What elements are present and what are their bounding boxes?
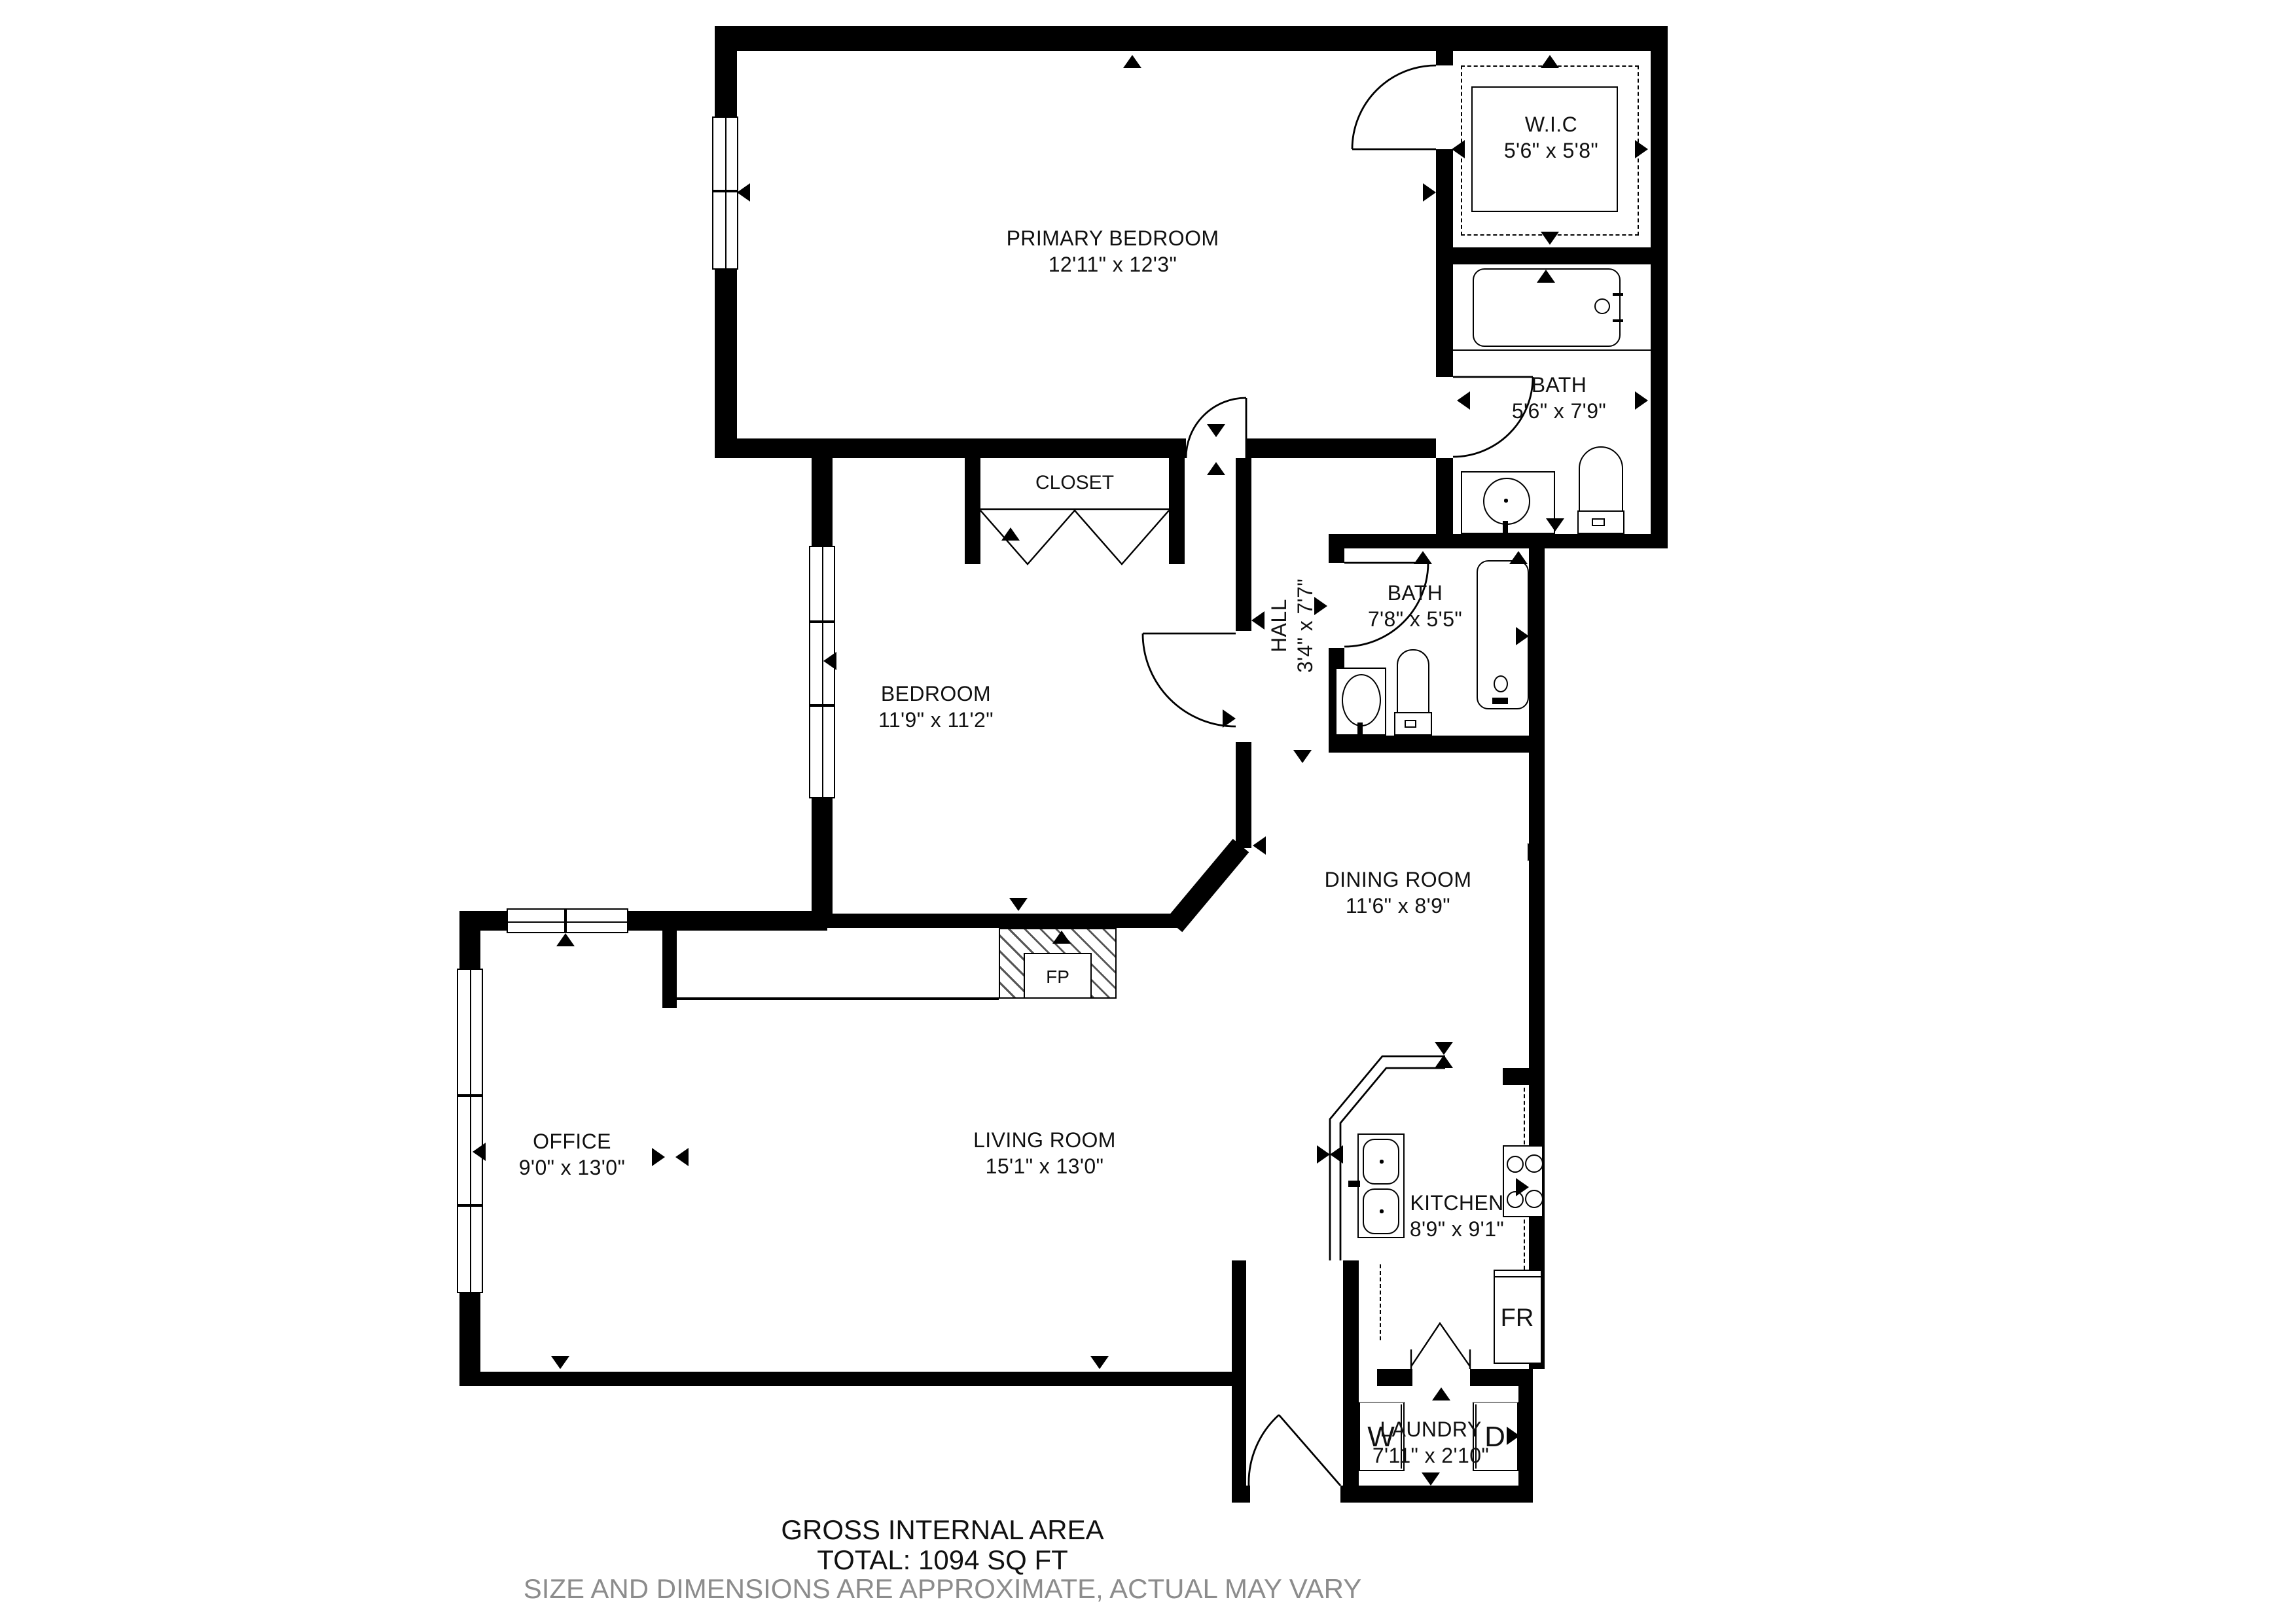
dimension-marker — [1635, 391, 1648, 410]
dimension-marker — [1090, 1356, 1109, 1369]
dimension-marker — [1516, 627, 1529, 645]
sink-faucet — [1357, 722, 1363, 734]
dimension-marker — [1423, 183, 1436, 202]
sink-faucet — [1348, 1181, 1360, 1187]
dimension-marker — [1435, 1042, 1453, 1055]
dimension-marker — [556, 933, 575, 946]
dimension-marker — [1541, 55, 1559, 68]
dimension-marker — [1317, 1145, 1330, 1164]
wall — [1529, 534, 1545, 1369]
toilet-flush — [1405, 720, 1416, 728]
dimension-marker — [1509, 551, 1528, 564]
label-fridge: FR — [1501, 1305, 1534, 1334]
wall — [626, 911, 827, 931]
wall — [1436, 458, 1453, 548]
wall — [459, 1372, 1232, 1386]
dimension-marker — [1528, 843, 1541, 861]
tub-tap — [1492, 698, 1508, 704]
dimension-marker — [1293, 750, 1312, 763]
dimension-marker — [473, 1143, 486, 1161]
wall — [662, 914, 677, 1008]
sink-drain — [1504, 499, 1507, 502]
dimension-marker — [1435, 1055, 1453, 1068]
sink-basin-icon — [1342, 674, 1381, 726]
dimension-marker — [1009, 898, 1028, 911]
floor-plan: PRIMARY BEDROOM12'11" x 12'3"W.I.C5'6" x… — [0, 0, 2296, 1623]
room-label-dining-room: DINING ROOM11'6" x 8'9" — [1325, 868, 1472, 919]
wall — [1232, 1260, 1246, 1503]
tub-tap — [1613, 319, 1623, 322]
label-closet: CLOSET — [1035, 472, 1114, 494]
dimension-marker — [1207, 462, 1225, 475]
dimension-marker — [1422, 1472, 1440, 1486]
dimension-marker — [1207, 424, 1225, 437]
wall — [1436, 247, 1668, 264]
counter-dashed-line — [1380, 1264, 1381, 1340]
wall — [715, 26, 1668, 51]
label-fireplace: FP — [1046, 966, 1069, 987]
wall — [1340, 1486, 1533, 1503]
dimension-marker — [1223, 709, 1236, 728]
wall — [1236, 458, 1251, 631]
dimension-marker — [1347, 1427, 1360, 1445]
wall — [1436, 149, 1453, 377]
wall — [1169, 438, 1185, 564]
sink-drain — [1380, 1209, 1383, 1213]
dimension-marker — [1541, 232, 1559, 245]
wall — [1343, 1260, 1359, 1486]
toilet-icon — [1579, 446, 1623, 512]
dimension-marker — [1635, 140, 1648, 158]
window — [507, 908, 628, 933]
room-label-kitchen: KITCHEN8'9" x 9'1" — [1410, 1192, 1504, 1243]
toilet-flush — [1592, 518, 1605, 526]
bath1-tub-line — [1453, 349, 1651, 351]
dimension-marker — [1537, 270, 1555, 283]
sink-drain — [1380, 1160, 1383, 1163]
dimension-marker — [1123, 55, 1141, 68]
label-washer: W — [1367, 1420, 1395, 1454]
wall — [1236, 742, 1251, 848]
dimension-marker — [1253, 836, 1266, 855]
room-label-living-room: LIVING ROOM15'1" x 13'0" — [973, 1129, 1116, 1180]
burner — [1507, 1156, 1524, 1173]
tub-tap — [1613, 293, 1623, 296]
dimension-marker — [823, 652, 836, 670]
wall — [1651, 26, 1668, 548]
dimension-marker — [1507, 1427, 1520, 1445]
toilet-icon — [1397, 649, 1429, 715]
wall — [1518, 1369, 1533, 1503]
dimension-marker — [675, 1148, 689, 1166]
dimension-marker — [1001, 527, 1020, 541]
dimension-marker — [1452, 140, 1465, 158]
dimension-marker — [1314, 597, 1327, 615]
wall — [1329, 534, 1668, 548]
wall — [965, 438, 980, 564]
tub-faucet-icon — [1594, 298, 1610, 314]
room-label-wic: W.I.C5'6" x 5'8" — [1504, 113, 1598, 164]
wall — [1329, 736, 1545, 753]
tub-faucet-icon — [1494, 675, 1508, 692]
dimension-marker — [1330, 1145, 1343, 1164]
wall — [1246, 438, 1436, 458]
room-label-hall: HALL3'4" x 7'7" — [1268, 579, 1319, 673]
dimension-marker — [1546, 518, 1564, 531]
window — [712, 116, 738, 270]
living-room-edge-line — [677, 997, 999, 999]
sink-faucet — [1503, 521, 1508, 533]
room-label-bedroom: BEDROOM11'9" x 11'2" — [878, 683, 994, 734]
gross-area-total: TOTAL: 1094 SQ FT — [817, 1546, 1068, 1577]
room-label-bath-2: BATH7'8" x 5'5" — [1368, 582, 1462, 633]
dimension-marker — [1457, 391, 1470, 410]
fridge-line — [1495, 1276, 1541, 1277]
label-dryer: D — [1484, 1420, 1505, 1454]
dimension-marker — [652, 1148, 665, 1166]
gross-area-title: GROSS INTERNAL AREA — [781, 1516, 1103, 1547]
room-label-office: OFFICE9'0" x 13'0" — [519, 1130, 626, 1181]
dimension-marker — [1432, 1387, 1450, 1400]
window — [809, 546, 835, 798]
burner — [1525, 1154, 1543, 1173]
dimension-marker — [1052, 931, 1071, 944]
dimension-marker — [1516, 1178, 1529, 1196]
wall — [827, 914, 1178, 928]
wall — [1436, 26, 1453, 65]
room-label-primary-bedroom: PRIMARY BEDROOM12'11" x 12'3" — [1007, 227, 1219, 278]
disclaimer-text: SIZE AND DIMENSIONS ARE APPROXIMATE, ACT… — [524, 1575, 1362, 1606]
wall — [715, 438, 1186, 458]
wall — [1329, 548, 1344, 563]
dimension-marker — [737, 183, 750, 202]
room-label-bath-1: BATH5'6" x 7'9" — [1512, 374, 1606, 425]
dimension-marker — [1414, 551, 1432, 564]
dimension-marker — [1251, 611, 1265, 630]
wall — [1377, 1369, 1412, 1386]
dimension-marker — [551, 1356, 569, 1369]
window — [457, 969, 483, 1293]
